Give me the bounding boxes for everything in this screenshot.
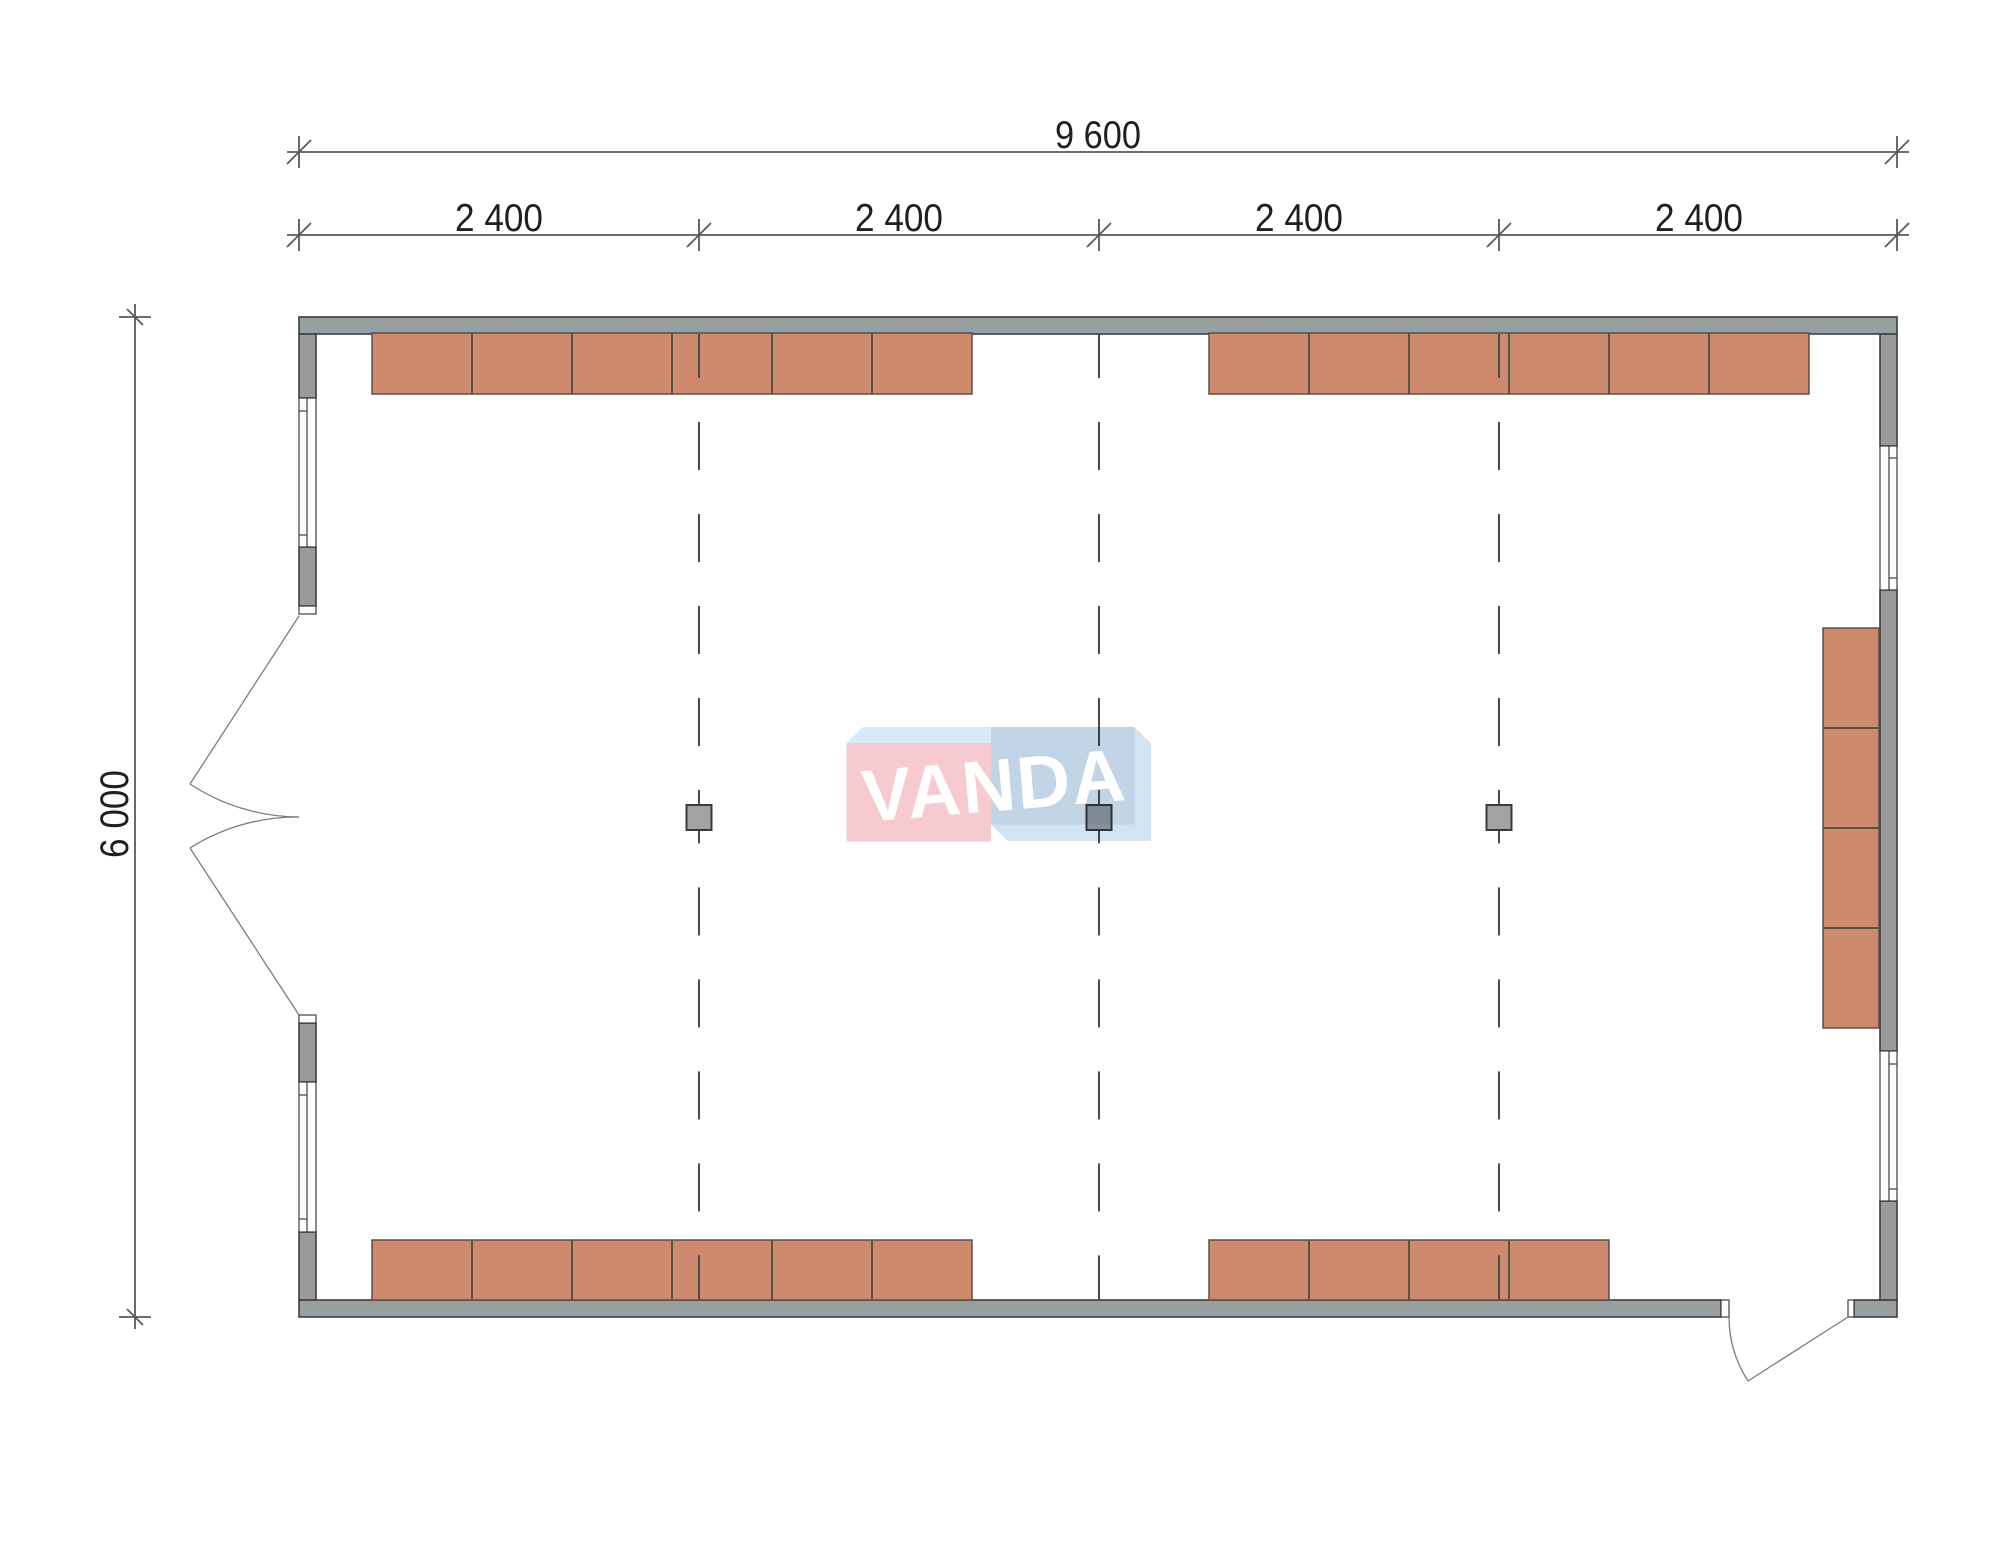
svg-text:2 400: 2 400 <box>455 197 543 240</box>
svg-text:6 000: 6 000 <box>93 770 137 858</box>
svg-text:2 400: 2 400 <box>1655 197 1743 240</box>
svg-text:2 400: 2 400 <box>1255 197 1343 240</box>
svg-text:9 600: 9 600 <box>1055 114 1141 157</box>
svg-text:2 400: 2 400 <box>855 197 943 240</box>
